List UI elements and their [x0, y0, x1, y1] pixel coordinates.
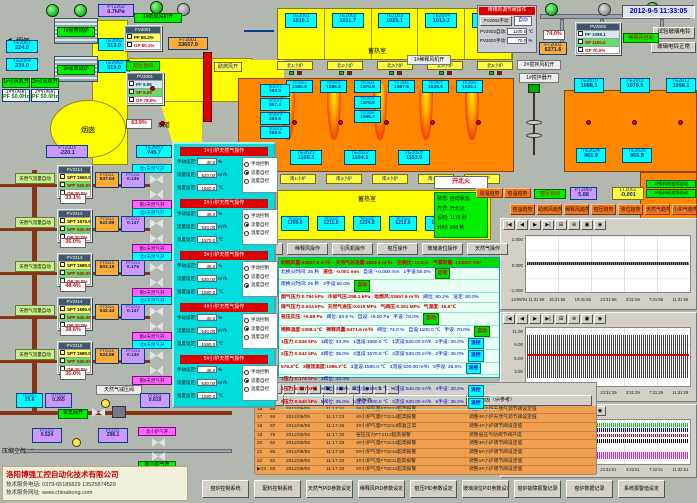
popup-section-title: 4#小炉天然气操作 [180, 303, 268, 312]
gas-south-valve-label: 南5天然气开 [132, 376, 172, 385]
gas-train-row: 天然气流量自动 PV2212 SPT 1570.0 SPF 530.00 OP … [0, 208, 175, 252]
gas-auto-label: 天然气流量自动 [15, 305, 55, 316]
pv-spt: SPT 1570.0 [59, 218, 90, 225]
chart-toolbar-button[interactable]: ⊕ [568, 220, 580, 230]
row-fault: 3#小炉气量FT2213超高报警 [354, 440, 467, 448]
unit-label: m³/h [218, 224, 227, 229]
pv2001-sp: SP 6.00 [128, 89, 162, 96]
level-trend-chart: |◀◀▶▶|⊞⊕▣◉ 1.0000.000-1.000 12/09/04 11:… [500, 218, 697, 310]
te-value: 1586.2 [321, 85, 346, 90]
north-smallgas-label: 北小炉气开 [138, 427, 176, 436]
temp-set-input[interactable]: 1570.0 [197, 236, 217, 243]
footer-nav-button[interactable]: 天然气PID参数设定 [306, 480, 353, 498]
bottom-te-box: TE20221104.1 [344, 150, 376, 165]
chart-toolbar-button[interactable]: |◀ [503, 220, 515, 230]
gas-pt-box: PT22140.147 [121, 304, 145, 320]
manual-set-input[interactable]: 30.0 [197, 314, 217, 321]
right-temps-row2: TE2024965.9 TE2025965.8 [576, 148, 652, 163]
pump-icon [598, 3, 611, 16]
pv2002-mode-value: 自动 [514, 16, 532, 27]
info-seg: 天然气进压:0.619 MPa [328, 303, 377, 312]
control-mode-radio[interactable]: 温度自控 [244, 229, 276, 238]
te-value: 1153.9 [399, 156, 429, 162]
radio-dot-icon [244, 335, 249, 340]
footer-nav-button[interactable]: 窑压PID参数设定 [410, 480, 457, 498]
control-mode-radio[interactable]: 温度自控 [244, 281, 276, 290]
te2201-box: TE220119.6 [16, 393, 43, 408]
info-seg: 自设: +6.00 Pa [358, 313, 390, 324]
chart-toolbar-button[interactable]: ◉ [594, 314, 606, 324]
dilution-auto-label: 稀释风自动 [623, 33, 659, 43]
info-row: 烟气压力:0.794 kPa冷却气压:298.1 kPa助燃风:33657.6 … [279, 293, 499, 303]
info-seg: 4手设: 30.0% [435, 385, 464, 396]
boiler1-label: 1#余热锅炉 [57, 27, 95, 37]
te-value: 1570.9 [355, 85, 380, 90]
feeder-auto-label: 1#投料机变频自动 [646, 180, 696, 188]
pv2002-manual-input[interactable]: 70.0 [507, 37, 527, 44]
chart-toolbar: |◀◀▶▶|⊞⊕▣◉ [501, 219, 696, 231]
right-te-box: TE2024965.9 [576, 148, 606, 163]
x-tick-label: 3:31:56 [626, 297, 640, 302]
info-seg: 南换火时间: 25 秒 [281, 280, 319, 291]
gas-ft-box: FT2215524.58 [95, 348, 119, 364]
pv2001-title: PV2001 [128, 74, 162, 80]
port-label: 北2小炉 [327, 61, 363, 70]
te-value: 745.7 [137, 151, 171, 157]
control-mode-radio[interactable]: 流量自控 [244, 377, 276, 386]
red-indicator-icon [347, 71, 352, 75]
x-tick-label: 11:31:56 [672, 297, 688, 302]
alarm-row[interactable]: 22 81 2012/09/05 11:17:33 1#小炉气量FT2211超高… [255, 458, 596, 467]
pv2001-pf: PF 5.88 [128, 81, 162, 88]
fan-freq: PF 50.0Hz [32, 95, 58, 101]
gas-auto-label: 天然气流量自动 [15, 217, 55, 228]
info-seg: 3碹顶温度:1586.7℃ [303, 363, 347, 374]
south-te-box: TE20431224.8 [353, 216, 381, 231]
compressed-air-line [20, 449, 232, 453]
row-code: 97 [268, 423, 284, 431]
x-tick-label: 19:31:56 [575, 297, 591, 302]
info-header: 助燃风量:33657.6 m³/h天然气总流量:2693.4 m³/h空燃比: … [279, 258, 499, 268]
valve-icon [150, 175, 163, 184]
regen-cell: TE20021011.7 [325, 9, 372, 59]
row-fault: 4#小炉气量FT2214恢复正常 [354, 423, 467, 431]
te-value: 1013.3 [426, 19, 456, 25]
pv2002-auto-input[interactable]: 1100.0 [507, 28, 527, 35]
pt-value: 0.178 [122, 265, 144, 270]
y-tick-label: 0.000 [502, 263, 523, 268]
sensor-dot-icon [430, 120, 435, 125]
compressed-air-label: 压缩空气 [2, 446, 26, 455]
trend-button[interactable]: 天然气趋势 [645, 204, 670, 215]
info-seg: 气阀压:0.261 MPa [380, 303, 419, 312]
pv2001-op: OP 78.0% [128, 97, 162, 104]
control-mode-radio[interactable]: 流量自控 [244, 273, 276, 282]
radio-dot-icon [244, 170, 249, 175]
right-te-box: TE20101088.1 [574, 78, 604, 93]
process-info-panel: 助燃风量:33657.6 m³/h天然气总流量:2693.4 m³/h空燃比: … [278, 257, 500, 378]
flow-set-input[interactable]: 530.00 [197, 275, 217, 282]
pump-icon [74, 4, 87, 17]
valve-icon [150, 278, 163, 287]
row-time: 11:17:33 [324, 458, 354, 466]
company-web[interactable]: 技术服务网址: www.chinabong.com [6, 488, 184, 496]
pump-icon [545, 3, 558, 16]
port-indicators [439, 71, 452, 75]
operation-button[interactable]: 窑压操作 [377, 243, 418, 255]
south-port-label: 南3小炉 [372, 174, 408, 184]
gas-pt-box: PT22130.178 [121, 260, 145, 276]
operation-buttons-row: 助燃风操作稀释风操作引风机操作窑压操作玻璃液位操作天然气操作 [242, 243, 508, 255]
pt2202b-box: PT22020.265 [45, 393, 72, 408]
alarm-row[interactable]: 18 97 2012/09/05 11:17:25 4#小炉气量FT2214恢复… [255, 423, 596, 432]
footer-nav-button[interactable]: 窑炉控制系统 [202, 480, 249, 498]
control-mode-radio[interactable]: 流量自控 [244, 169, 276, 178]
te-value: 1104.1 [345, 156, 375, 162]
info-row: 4压力:0.547 kPa4阀位: 36.6%4温设:1590.0 ℃4流设:5… [279, 385, 499, 397]
info-seg: 气温度: 19.6℃ [424, 303, 456, 312]
kiln-auto-label: 窑压自动 [534, 189, 566, 199]
trend-button[interactable]: 液位趋势 [618, 204, 643, 215]
pv2002-op: OP 70.0% [577, 47, 619, 54]
radio-label: 手动控制 [251, 160, 269, 169]
footer-nav-button[interactable]: 系统报警值设定 [618, 480, 665, 498]
waste-heat-boiler-2: 2#余热锅炉 [54, 56, 98, 82]
radio-label: 流量自控 [251, 325, 269, 334]
radio-dot-icon [244, 162, 249, 167]
gas-north-valve-label: 北1天然气开 [132, 164, 172, 173]
row-date: 2012/09/05 [284, 432, 324, 440]
control-mode-radio[interactable]: 手动控制 [244, 264, 276, 273]
info-seg: 5流设:530.00 m³/h [392, 398, 431, 409]
operation-button[interactable]: 引风机操作 [332, 243, 373, 255]
trend-button[interactable]: 碹温趋势 [476, 188, 503, 198]
radio-label: 手动控制 [251, 212, 269, 221]
row-time: 11:17:30 [324, 432, 354, 440]
regen-te-box: TE20021011.7 [332, 13, 364, 28]
chart-toolbar-button[interactable]: |◀ [503, 314, 515, 324]
popup-section: 1#小炉天然气操作 手动设定: 30.0 % 流量设定: 520.00 m³/h… [176, 147, 272, 196]
sensor-dot-icon [292, 120, 297, 125]
alarm-row[interactable]: 19 75 2012/09/05 11:17:30 窑压压力PT2112超高报警… [255, 432, 596, 441]
pv-title: PV2212 [59, 211, 90, 217]
datetime-display: 2012-9-5 11:33:05 [622, 5, 695, 18]
info-seg: 1温设:1560.0 ℃ [353, 338, 388, 349]
manual-set-input[interactable]: 35.0 [197, 262, 217, 269]
flow-set-input[interactable]: 540.00 [197, 327, 217, 334]
valve-icon [150, 190, 163, 199]
radio-dot-icon [244, 222, 249, 227]
temp-set-input[interactable]: 1580.0 [197, 288, 217, 295]
trend-button[interactable]: 助燃风趋势 [537, 204, 562, 215]
info-seg: 3温设:1580.0 ℃ [351, 363, 386, 374]
control-mode-radios: 手动控制 流量自控 温度自控 [242, 365, 278, 401]
radio-label: 流量自控 [251, 377, 269, 386]
trend-button[interactable]: 稀释风趋势 [564, 204, 589, 215]
info-seg: 自设:1100.0 ℃ [408, 326, 440, 337]
info-seg: 3阀位: 48.4% [321, 375, 350, 384]
ft-value: 298.1 [99, 433, 127, 438]
control-mode-radio[interactable]: 流量自控 [244, 221, 276, 230]
alarm-row[interactable]: 21 85 2012/09/05 11:17:33 5#小炉气量FT2215超高… [255, 449, 596, 458]
north-ports-row: 北1小炉 北2小炉 北3小炉 北4小炉 北5小炉 [277, 61, 513, 75]
sensor-dot-icon [150, 86, 155, 91]
port-indicators [489, 71, 502, 75]
y-tick-label: 6.00 [502, 356, 523, 361]
te-value: 1011.7 [333, 19, 363, 25]
dilution-valve-position: 74.0% [543, 30, 565, 40]
regen-te-box: TE20011010.1 [285, 13, 317, 28]
chart-toolbar-button[interactable]: ⊕ [568, 314, 580, 324]
info-row: 煤气压力:0.524 kPa天然气进压:0.619 MPa气阀压:0.261 M… [279, 303, 499, 313]
gas-ft-box: FT2212522.89 [95, 216, 119, 232]
te-value: 1567.5 [389, 85, 414, 90]
radio-dot-icon [244, 318, 249, 323]
radio-dot-icon [244, 387, 249, 392]
te2053-box: TE2053745.7 [136, 145, 172, 158]
crown-temps-sub: TE20231579.8 TE20051586.7 [354, 96, 381, 123]
control-mode-radio[interactable]: 温度自控 [244, 333, 276, 342]
popup-section: 5#小炉天然气操作 手动设定: 36.0 % 流量设定: 530.00 m³/h… [176, 355, 272, 404]
pv2002-manual-button[interactable]: PV2002手动 [480, 16, 512, 27]
footer-nav-button[interactable]: 窑炉数据记录 [566, 480, 613, 498]
red-indicator-icon [397, 71, 402, 75]
x-axis-labels: 12/09/04 11:31:56 15:31:5619:31:5623:31:… [511, 297, 693, 302]
te-value: 1579.8 [355, 101, 380, 106]
gas-train-row: 天然气温度自动 PV2213 SPT 1580.0 SPF 530.00 OP … [0, 252, 175, 296]
footer-nav-button[interactable]: 窑炉故障报警记录 [514, 480, 561, 498]
bottom-temps-row: TE20211108.3 TE20221104.1 TE20231153.9 [290, 150, 430, 165]
valve-icon [152, 452, 165, 461]
chart-toolbar-button[interactable]: ⊞ [555, 314, 567, 324]
x-tick-label: 11:31:29 [672, 390, 688, 395]
bell-normal-button[interactable]: 玻璃电铃正常 [651, 42, 696, 53]
trend-button[interactable]: 窑温趋势 [510, 204, 535, 215]
right-te-box: TE20111079.6 [620, 78, 650, 93]
control-mode-radio[interactable]: 手动控制 [244, 368, 276, 377]
pressure-series [527, 335, 689, 378]
row-no: 22 [257, 459, 262, 464]
flow-set-input[interactable]: 530.00 [197, 223, 217, 230]
bottom-te-box: TE20211108.3 [290, 150, 322, 165]
chart-toolbar-button[interactable]: ▣ [581, 314, 593, 324]
x-tick-label: 11:32:51 [672, 467, 688, 472]
gas-north-valve-label: 北3天然气开 [132, 252, 172, 261]
row-time: 11:17:33 [324, 449, 354, 457]
manual-set-label: 手动设定: [177, 315, 196, 321]
chart-toolbar-button[interactable]: ▶ [529, 220, 541, 230]
valve-icon [150, 322, 163, 331]
radio-dot-icon [244, 214, 249, 219]
row-no: 21 [257, 450, 262, 455]
info-row: 南换火时间: 25 秒2手设:50.0%自动 [279, 280, 499, 292]
gas-valve-position: 48.4% [60, 282, 86, 292]
chart-toolbar-button[interactable]: ▣ [581, 220, 593, 230]
info-seg: 自动 [474, 326, 490, 337]
pt-value: 0.136 [122, 177, 144, 182]
gauge-icon [72, 438, 81, 447]
radio-dot-icon [244, 378, 249, 383]
stirrer-on-label: 1#搅拌器开 [519, 73, 559, 83]
alarm-row[interactable]: 20 82 2012/09/05 11:17:33 3#小炉气量FT2213超高… [255, 440, 596, 449]
id-fan1-on-label: 1#引风机开 [2, 78, 30, 88]
te-value: 965.8 [623, 154, 651, 160]
footer-nav-button[interactable]: 配料控制系统 [254, 480, 301, 498]
info-seg: 温控 [466, 363, 482, 374]
operation-button[interactable]: 稀释风操作 [287, 243, 328, 255]
side-te-box: TE2073269.6 [260, 112, 290, 125]
gas-train-row: 天然气流量自动 PV2214 SPT 1590.0 SPF 540.00 OP … [0, 296, 175, 340]
control-mode-radio[interactable]: 温度自控 [244, 177, 276, 186]
gas-ft-box: FT2213603.19 [95, 260, 119, 276]
ft-value: 0.619 [141, 398, 169, 403]
gas-valve-position: 33.1% [60, 194, 86, 204]
row-time: 11:17:23 [324, 414, 354, 422]
info-seg: 窑压实压: +5.88 Pa [281, 313, 322, 324]
manual-set-input[interactable]: 35.0 [197, 210, 217, 217]
radio-dot-icon [244, 231, 249, 236]
row-date: 2012/09/05 [284, 458, 324, 466]
operation-button[interactable]: 天然气操作 [467, 243, 508, 255]
popup-section-title: 1#小炉天然气操作 [180, 147, 268, 156]
south-port-label: 南2小炉 [326, 174, 362, 184]
popup-section-title: 3#小炉天然气操作 [180, 251, 268, 260]
info-seg: 5压力:0.540 kPa [281, 398, 317, 409]
sensor-dot-icon [160, 121, 165, 126]
radio-dot-icon [244, 326, 249, 331]
kiln-pressure-auto-label: 窑压自动 [126, 61, 160, 71]
te-value: 19.6 [17, 398, 42, 403]
scada-furnace-screen: ◄ 烟气 PT22020.7kPa ◄ 软化水 1#余热锅炉 2#余热锅炉 TE… [0, 0, 697, 503]
radio-label: 手动控制 [251, 316, 269, 325]
row-date: 2012/09/05 [284, 466, 324, 474]
te-value: 224.0 [7, 46, 37, 52]
info-row: 578.8℃3碹顶温度:1586.7℃3温设:1580.0 ℃3流设:530.0… [279, 363, 499, 375]
y-tick-label: 3.00 [502, 369, 523, 374]
info-seg: 阀位: 80.2% [423, 293, 449, 302]
regen-te-box: TE20031025.1 [378, 13, 410, 28]
te-value: 319.0 [99, 66, 129, 72]
green-indicator-icon [289, 71, 294, 75]
radio-label: 温度自控 [251, 333, 269, 342]
lt2001-box: LT2001-0.001 [612, 187, 644, 200]
control-mode-radio[interactable]: 流量自控 [244, 325, 276, 334]
info-seg: 煤气压力:0.524 kPa [281, 303, 324, 312]
te-value: 1550.8 [287, 85, 312, 90]
info-seg: 空燃比: 12.5:1 [397, 259, 428, 266]
pt-value: 5.88 [571, 193, 596, 199]
alarm-row[interactable]: ▶23 83 2012/09/05 11:17:33 2#小炉气量FT2212超… [255, 466, 596, 475]
control-mode-radio[interactable]: 手动控制 [244, 316, 276, 325]
fv2001-op: OP 80.1% [126, 42, 160, 49]
pt-value: 0.147 [122, 221, 144, 226]
info-seg: 5温设:1580.0 ℃ [353, 398, 388, 409]
temp-set-input[interactable]: 1580.0 [197, 392, 217, 399]
alarm-row[interactable]: 17 84 2012/09/05 11:17:23 4#小炉气量FT2214超高… [255, 414, 596, 423]
operation-button[interactable]: 玻璃液位操作 [422, 243, 463, 255]
radio-label: 流量自控 [251, 273, 269, 282]
row-cause: 调整2#小炉调节阀设定值 [467, 466, 592, 474]
row-cause: 调整窑压气动调节阀开度 [467, 432, 592, 440]
lt-value: -0.001 [613, 193, 643, 199]
x-ticks: 15:31:5619:31:5623:31:563:31:567:31:5611… [544, 297, 693, 302]
popup-section-title: 5#小炉天然气操作 [180, 355, 268, 364]
flow-set-input[interactable]: 520.00 [197, 171, 217, 178]
flow-set-input[interactable]: 530.00 [197, 379, 217, 386]
temp-set-input[interactable]: 1560.0 [197, 184, 217, 191]
pv-spf: SPF 530.00 [59, 226, 90, 233]
row-cause: 调整3#小炉调节阀设定值 [467, 440, 592, 448]
chart-toolbar-button[interactable]: ◉ [594, 220, 606, 230]
south-port-label: 南1小炉 [280, 174, 316, 184]
valve-icon [152, 438, 165, 447]
radio-dot-icon [244, 179, 249, 184]
temp-set-label: 温度设定: [177, 289, 196, 295]
x-tick-label: 7:32:51 [649, 467, 663, 472]
sensor-dot-icon [678, 120, 683, 125]
manual-set-input[interactable]: 30.0 [197, 158, 217, 165]
crown-te-box: TE20051586.7 [354, 110, 381, 123]
trend-button[interactable]: 小炉气趋势 [672, 204, 697, 215]
footer-nav-button[interactable]: 玻璃液位PID参数设定 [462, 480, 509, 498]
te-value: 1108.3 [291, 156, 321, 162]
chart-toolbar-button[interactable]: ◀ [516, 220, 528, 230]
row-no: 18 [257, 424, 262, 429]
manual-set-input[interactable]: 36.0 [197, 366, 217, 373]
ft-value: 522.89 [96, 221, 118, 226]
chart-toolbar-button[interactable]: ▶ [529, 314, 541, 324]
control-mode-radio[interactable]: 手动控制 [244, 160, 276, 169]
row-time: 11:17:33 [324, 440, 354, 448]
id-fan2-on-label: 2#引风机开 [31, 78, 59, 88]
pump-icon [46, 4, 59, 17]
comb-air-on-label: 助燃风开 [214, 62, 242, 72]
smallfurnace-gas-popup: 1#小炉天然气操作 手动设定: 30.0 % 流量设定: 520.00 m³/h… [172, 142, 276, 408]
plot-area [525, 235, 691, 293]
chart-toolbar-button[interactable]: ▶| [542, 220, 554, 230]
chart-toolbar-button[interactable]: ⊞ [555, 220, 567, 230]
control-mode-radio[interactable]: 手动控制 [244, 212, 276, 221]
bell-test-button[interactable]: 试验玻璃电铃 [653, 27, 695, 39]
flow-set-label: 流量设定: [177, 276, 196, 282]
gas-valve-position: 35.0% [60, 370, 86, 380]
x-tick-label: 23:31:29 [600, 390, 616, 395]
footer-nav-button[interactable]: 稀释风PID参数设定 [358, 480, 405, 498]
chart-toolbar-button[interactable]: ◀ [516, 314, 528, 324]
trend-button[interactable]: 窑温趋势 [504, 188, 531, 198]
north-port: 北2小炉 [327, 61, 363, 75]
te-value: 267.4 [261, 103, 289, 108]
temp-set-input[interactable]: 1590.0 [197, 340, 217, 347]
crown-te-box: TE20011550.8 [286, 80, 313, 93]
fire-status-box: 状态: 自动状态方式: 开北火设时: 1175 秒计时: 208 秒 [434, 192, 488, 238]
manual-set-label: 手动设定: [177, 263, 196, 269]
info-seg: 气累积量: 134057.7m³ [433, 259, 481, 266]
emergency-valve-label: 紧急阀开 [58, 409, 88, 419]
control-mode-radio[interactable]: 温度自控 [244, 385, 276, 394]
south-te-box: TE20421211.0 [317, 216, 345, 231]
valve-icon [150, 234, 163, 243]
te-value: 965.9 [577, 154, 605, 160]
row-cause: 调整4#小炉天然气调节阀设定值 [467, 414, 592, 422]
temp-set-label: 温度设定: [177, 237, 196, 243]
x-tick-label: 23:31:56 [600, 297, 616, 302]
radio-label: 温度自控 [251, 281, 269, 290]
trend-button[interactable]: 窑压趋势 [591, 204, 616, 215]
chart-toolbar-button[interactable]: ▶| [542, 314, 554, 324]
gas-pt-box: PT22110.136 [121, 172, 145, 188]
port-label: 北1小炉 [277, 61, 313, 70]
